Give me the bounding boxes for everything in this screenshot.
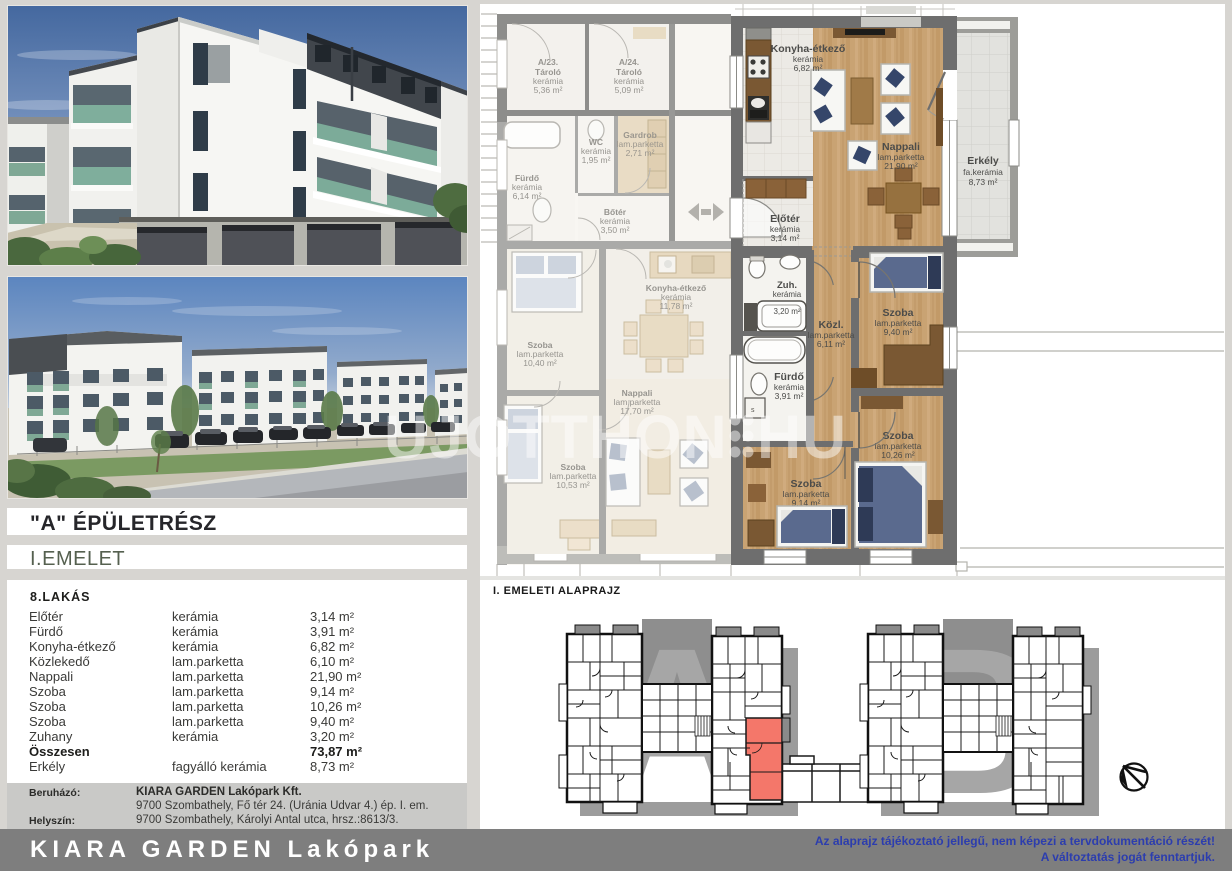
svg-text:10,40 m²: 10,40 m² (523, 358, 557, 368)
svg-text:A/23.: A/23. (538, 57, 558, 67)
svg-text:2,71 m²: 2,71 m² (626, 148, 655, 158)
svg-text:3,14 m²: 3,14 m² (771, 233, 800, 243)
svg-text:8,73 m²: 8,73 m² (969, 177, 998, 187)
svg-text:21,90 m²: 21,90 m² (884, 161, 918, 171)
svg-text:5,09 m²: 5,09 m² (615, 85, 644, 95)
svg-text:Erkély: Erkély (967, 155, 999, 167)
svg-text:fa.kerámia: fa.kerámia (963, 167, 1003, 177)
svg-text:10,53 m²: 10,53 m² (556, 480, 590, 490)
svg-text:11,78 m²: 11,78 m² (660, 301, 693, 311)
svg-text:5,36 m²: 5,36 m² (534, 85, 563, 95)
svg-text:s: s (751, 407, 755, 414)
svg-text:HU: HU (757, 403, 847, 471)
svg-text:kerámia: kerámia (773, 290, 802, 299)
svg-text:3,91 m²: 3,91 m² (775, 391, 804, 401)
svg-text:10,26 m²: 10,26 m² (881, 450, 915, 460)
svg-text:A/24.: A/24. (619, 57, 639, 67)
svg-text:UJOTTHON: UJOTTHON (384, 403, 728, 471)
svg-text:1,95 m²: 1,95 m² (582, 155, 611, 165)
svg-text:9,40 m²: 9,40 m² (884, 327, 913, 337)
svg-text:3,50 m²: 3,50 m² (601, 225, 630, 235)
svg-text:6,14 m²: 6,14 m² (513, 191, 542, 201)
svg-text:6,11 m²: 6,11 m² (817, 339, 845, 349)
svg-text:6,82 m²: 6,82 m² (794, 63, 823, 73)
svg-text:3,20 m²: 3,20 m² (773, 307, 800, 316)
